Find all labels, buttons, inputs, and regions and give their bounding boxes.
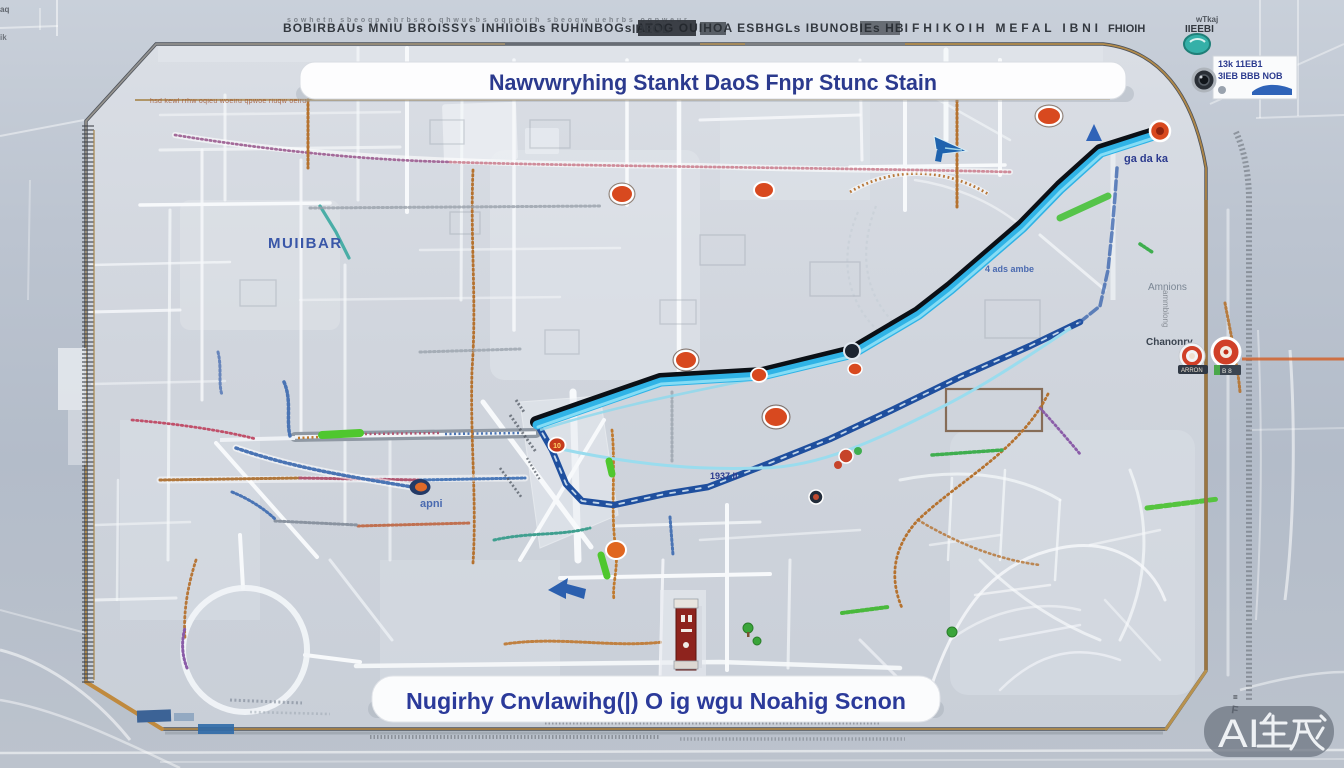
svg-text:3IEB BBB NOB: 3IEB BBB NOB: [1218, 71, 1283, 81]
svg-text:ga da ka: ga da ka: [1124, 153, 1169, 165]
svg-text:Nawvwryhing Stankt DaoS Fnpr S: Nawvwryhing Stankt DaoS Fnpr Stunc Stain: [489, 70, 937, 95]
svg-text:ARRON: ARRON: [1181, 368, 1203, 374]
svg-text:IDEOL: IDEOL: [632, 22, 670, 36]
svg-text:MUIIBAR: MUIIBAR: [268, 235, 343, 252]
svg-text:apni: apni: [420, 498, 443, 510]
svg-text:10: 10: [553, 443, 561, 450]
svg-text:FHIOIH: FHIOIH: [1108, 23, 1145, 35]
svg-text:AI: AI: [1218, 712, 1260, 756]
svg-text:wTkaj: wTkaj: [1195, 15, 1218, 24]
svg-text:ammblong: ammblong: [1161, 290, 1170, 327]
svg-text:hsd kewl rrhw oqieu woeiru qpw: hsd kewl rrhw oqieu woeiru qpwoe riuqw o…: [150, 98, 306, 105]
svg-text:aq: aq: [0, 5, 9, 14]
svg-text:4 ads ambe: 4 ads ambe: [985, 264, 1034, 274]
svg-text:ik: ik: [0, 33, 7, 42]
svg-text:Nugirhy Cnvlawihg(|) O ig wgu: Nugirhy Cnvlawihg(|) O ig wgu Noahig Scn…: [406, 688, 906, 714]
svg-text:=: =: [1233, 693, 1238, 702]
svg-text:13k 11EB1: 13k 11EB1: [1218, 59, 1263, 69]
svg-text:1937 II: 1937 II: [710, 471, 738, 481]
svg-text:B 8: B 8: [1222, 368, 1232, 375]
